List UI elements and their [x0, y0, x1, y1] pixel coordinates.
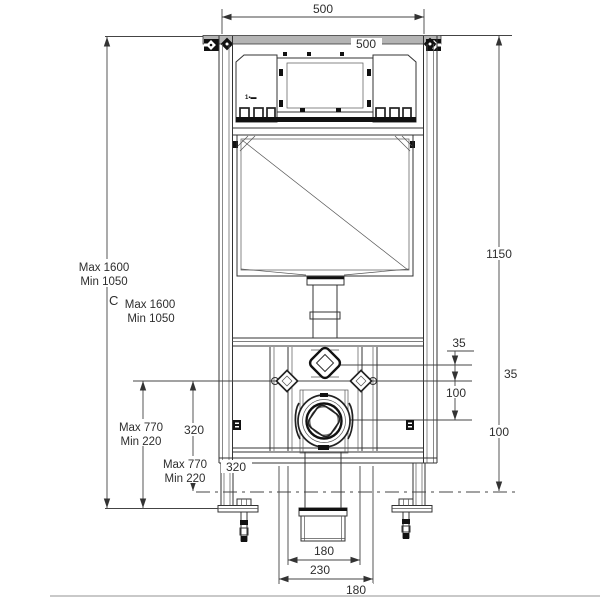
fixing-bolt-left: [272, 370, 298, 391]
dim-left-max-dup-label: Max 1600: [125, 299, 176, 311]
flush-pipe: [307, 277, 344, 338]
left-rail: [219, 36, 233, 463]
dimension-chain-right: 35 100: [441, 336, 474, 420]
fixing-bolt-right: [350, 370, 376, 391]
wall-bracket-left: [204, 39, 219, 51]
flush-bend-fitting: [308, 346, 342, 380]
waste-outlet: [295, 390, 352, 453]
protection-block-left: [236, 55, 277, 122]
foot-left: [218, 499, 258, 542]
dim-left-min-dup-label: Min 1050: [127, 313, 174, 325]
right-leg: [413, 463, 425, 506]
fixing-lugs: [236, 108, 416, 122]
access-shaft-inner: [287, 63, 363, 108]
dim-bowl-min-label: Min 220: [121, 436, 162, 448]
technical-drawing: 1▪▬: [0, 0, 600, 600]
dim-top-width-label: 500: [313, 2, 333, 16]
tank: [237, 135, 413, 276]
dim-230-label: 230: [310, 563, 330, 577]
dim-chain-35-label: 35: [452, 336, 466, 350]
dimension-right-height: 1150 35 100: [440, 36, 518, 492]
cistern: 1▪▬: [236, 52, 416, 338]
dim-180-dup-label: 180: [346, 583, 366, 597]
dim-bowl-min-dup-label: Min 220: [165, 473, 206, 485]
middle-crossbar: [232, 338, 424, 346]
dim-320-dup-label: 320: [226, 460, 246, 474]
dimension-left-lower: Max 770 Min 220 320 Max 770 Min 220 320: [112, 381, 252, 508]
pipe-clamp-right-icon: [406, 420, 414, 430]
dim-bowl-max-dup-label: Max 770: [163, 459, 207, 471]
dim-right-100-label: 100: [489, 425, 509, 439]
top-rail: [203, 36, 441, 45]
dimension-bottom: 180 230 180: [279, 466, 373, 597]
dim-top-width-inner-label: 500: [356, 37, 376, 51]
right-rail: [424, 36, 438, 463]
drain-outlet: [299, 452, 347, 541]
dim-320-label: 320: [184, 423, 204, 437]
dim-chain-100-label: 100: [446, 386, 466, 400]
dim-bowl-max-label: Max 770: [119, 422, 163, 434]
dim-left-c-label: C: [109, 293, 118, 308]
pipe-clamp-left-icon: [233, 420, 241, 430]
drawing-canvas: 1▪▬: [0, 0, 600, 600]
dim-right-height-label: 1150: [486, 247, 512, 261]
foot-right: [392, 499, 432, 539]
dim-180-label: 180: [314, 544, 334, 558]
upper-crossbar: [232, 128, 424, 135]
access-shaft-outer: [277, 58, 373, 112]
tank-diagonal: [242, 140, 408, 270]
bracket-assembly: [233, 346, 414, 453]
drain-elbow: [301, 516, 345, 541]
pipe-coupling: [310, 312, 340, 319]
dimension-top-width-duplicate: 500: [351, 37, 382, 51]
dim-left-min-label: Min 1050: [80, 276, 127, 288]
cistern-logo: 1▪▬: [245, 95, 256, 101]
dim-left-max-label: Max 1600: [79, 262, 130, 274]
dim-right-35-label: 35: [504, 367, 518, 381]
protection-block-right: [373, 55, 416, 122]
dimension-top-width: 500: [222, 2, 424, 34]
